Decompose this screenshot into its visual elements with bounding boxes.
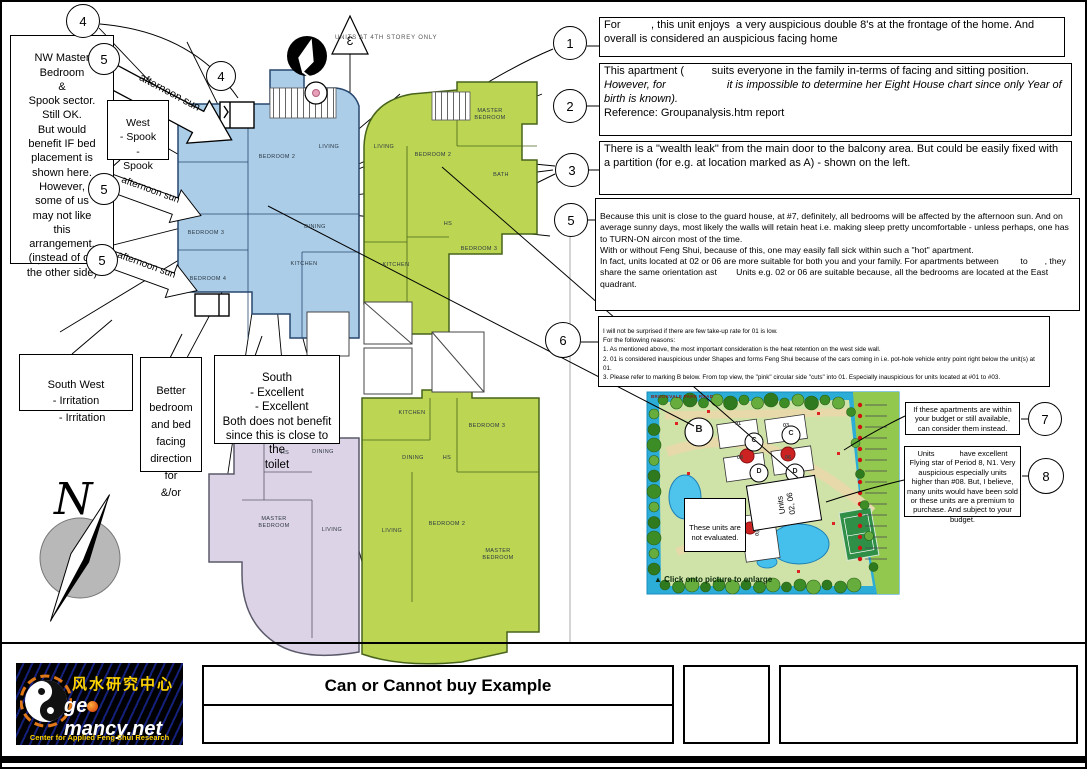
note-5-box: Because this unit is close to the guard … <box>595 198 1080 311</box>
title-block-cell-small <box>683 665 770 744</box>
room-label: LIVING <box>370 528 414 535</box>
room-label: HS <box>437 221 459 228</box>
title-block-divider <box>2 642 1085 644</box>
room-label: BEDROOM 4 <box>184 276 232 283</box>
room-label: KITCHEN <box>390 410 434 417</box>
note-3-text: There is a "wealth leak" from the main d… <box>604 143 1058 169</box>
callout-2-label: 2 <box>566 99 573 114</box>
callout-5-label: 5 <box>100 52 107 67</box>
note-7-box: If these apartments are within your budg… <box>905 402 1020 435</box>
callout-4-label: 4 <box>79 14 86 29</box>
wealth-marker-icon <box>305 82 327 104</box>
south-excellent-box: South - Excellent - Excellent Both does … <box>214 355 340 444</box>
room-label: BEDROOM 3 <box>454 246 504 253</box>
geomancy-logo: 风水研究中心 gemancy.net Center for Applied Fe… <box>16 663 183 745</box>
map-marker-c: C <box>785 430 797 437</box>
better-bedroom-box: Better bedroom and bed facing direction … <box>140 357 202 472</box>
room-label: MASTER BEDROOM <box>474 548 522 562</box>
logo-ball-icon <box>87 701 98 712</box>
room-label: MASTER BEDROOM <box>250 516 298 530</box>
callout-7-label: 7 <box>1041 412 1048 427</box>
map-marker-d: D <box>789 468 801 475</box>
room-label: LIVING <box>310 527 354 534</box>
note-1-text: For , this unit enjoys a very auspicious… <box>604 19 1034 45</box>
room-label: KITCHEN <box>374 262 418 269</box>
logo-domain-pre: ge <box>64 695 87 717</box>
note-5-text: Because this unit is close to the guard … <box>600 211 1069 288</box>
callout-6-label: 6 <box>559 333 566 348</box>
callout-7: 7 <box>1028 402 1062 436</box>
callout-4-plan: 4 <box>206 61 236 91</box>
west-spook-text: West - Spook - Spook <box>120 117 156 172</box>
note-2-reference: Reference: Groupanalysis.htm report <box>604 107 1067 121</box>
room-label: HS <box>436 455 458 462</box>
callout-1: 1 <box>553 26 587 60</box>
enlarge-icon: ▲ <box>654 575 662 584</box>
callout-3: 3 <box>555 153 589 187</box>
note-6-text: I will not be surprised if there are few… <box>603 328 1035 381</box>
map-unit-04: 04 <box>732 455 748 461</box>
callout-8-label: 8 <box>1042 469 1049 484</box>
callout-3-label: 3 <box>568 163 575 178</box>
map-marker-d: D <box>753 468 765 475</box>
map-click-to-enlarge[interactable]: ▲ Click onto picture to enlarge <box>654 575 894 584</box>
bed-icon-top <box>220 102 254 128</box>
note-2-box: This apartment ( suits everyone in the f… <box>599 63 1072 136</box>
room-label: BEDROOM 2 <box>408 152 458 159</box>
room-label: DINING <box>302 449 344 456</box>
room-label: BEDROOM 3 <box>182 230 230 237</box>
north-label: N <box>54 474 93 525</box>
page-title: Can or Cannot buy Example <box>204 667 672 706</box>
bed-icon-bottom <box>195 294 229 316</box>
callout-5-label: 5 <box>567 213 574 228</box>
map-unit-01: 01 <box>730 421 746 427</box>
room-label: BEDROOM 2 <box>422 521 472 528</box>
callout-5-label: 5 <box>98 253 105 268</box>
map-unit-03: 03 <box>778 423 794 429</box>
room-label: DINING <box>392 455 434 462</box>
room-label: KITCHEN <box>282 261 326 268</box>
room-label: BEDROOM 3 <box>462 423 512 430</box>
west-spook-box: West - Spook - Spook <box>107 100 169 160</box>
callout-6: 6 <box>545 322 581 358</box>
facing-triangle-label: 3 <box>342 34 358 48</box>
callout-4-label: 4 <box>217 69 224 84</box>
map-note-text: These units are not evaluated. <box>689 523 741 543</box>
callout-8: 8 <box>1028 458 1064 494</box>
enlarge-text[interactable]: Click onto picture to enlarge <box>664 575 772 584</box>
note-8-box: Units have excellent Flying star of Peri… <box>904 446 1021 517</box>
map-unit-06: 06 <box>780 455 796 461</box>
callout-5-arrow2: 5 <box>88 173 120 205</box>
map-marker-c: C <box>748 437 760 444</box>
map-road-label: BROOKVALE PARK ROAD <box>651 394 713 399</box>
room-label: BATH <box>488 172 514 179</box>
southwest-irritation-text: South West - Irritation - Irritation <box>47 379 106 424</box>
title-box: Can or Cannot buy Example <box>202 665 674 744</box>
note-8-text: Units have excellent Flying star of Peri… <box>907 449 1018 524</box>
callout-5-arrow1: 5 <box>88 43 120 75</box>
note-7-text: If these apartments are within your budg… <box>913 405 1011 433</box>
map-note-box: These units are not evaluated. <box>684 498 746 552</box>
nw-bedroom-note-text: NW Master Bedroom & Spook sector. Still … <box>27 52 97 278</box>
room-label: LIVING <box>362 144 406 151</box>
title-subtitle-empty <box>204 706 672 744</box>
room-label: HS <box>274 450 296 457</box>
room-label: BEDROOM 2 <box>252 154 302 161</box>
callout-1-label: 1 <box>566 36 573 51</box>
logo-chinese-text: 风水研究中心 <box>72 673 174 694</box>
room-label: DINING <box>294 224 336 231</box>
balcony-hatch-green <box>432 92 470 120</box>
note-1-box: For , this unit enjoys a very auspicious… <box>599 17 1065 57</box>
title-block-cell-right <box>779 665 1078 744</box>
map-marker-b: B <box>690 424 708 435</box>
callout-5-right: 5 <box>554 203 588 237</box>
southwest-irritation-box: South West - Irritation - Irritation <box>19 354 133 411</box>
room-label: LIVING <box>307 144 351 151</box>
bottom-bar <box>2 756 1085 763</box>
note-2-italic-text: However, for it is impossible to determi… <box>604 79 1062 105</box>
callout-5-label: 5 <box>100 182 107 197</box>
feng-shui-report-page: For , this unit enjoys a very auspicious… <box>0 0 1087 769</box>
callout-4-topleft: 4 <box>66 4 100 38</box>
note-3-box: There is a "wealth leak" from the main d… <box>599 141 1072 195</box>
logo-tagline-text: Center for Applied Feng Shui Research <box>16 733 183 742</box>
note-2-text: This apartment ( suits everyone in the f… <box>604 65 1029 77</box>
note-6-box: I will not be surprised if there are few… <box>598 316 1050 387</box>
room-label: MASTER BEDROOM <box>466 108 514 122</box>
callout-2: 2 <box>553 89 587 123</box>
callout-5-arrow3: 5 <box>86 244 118 276</box>
